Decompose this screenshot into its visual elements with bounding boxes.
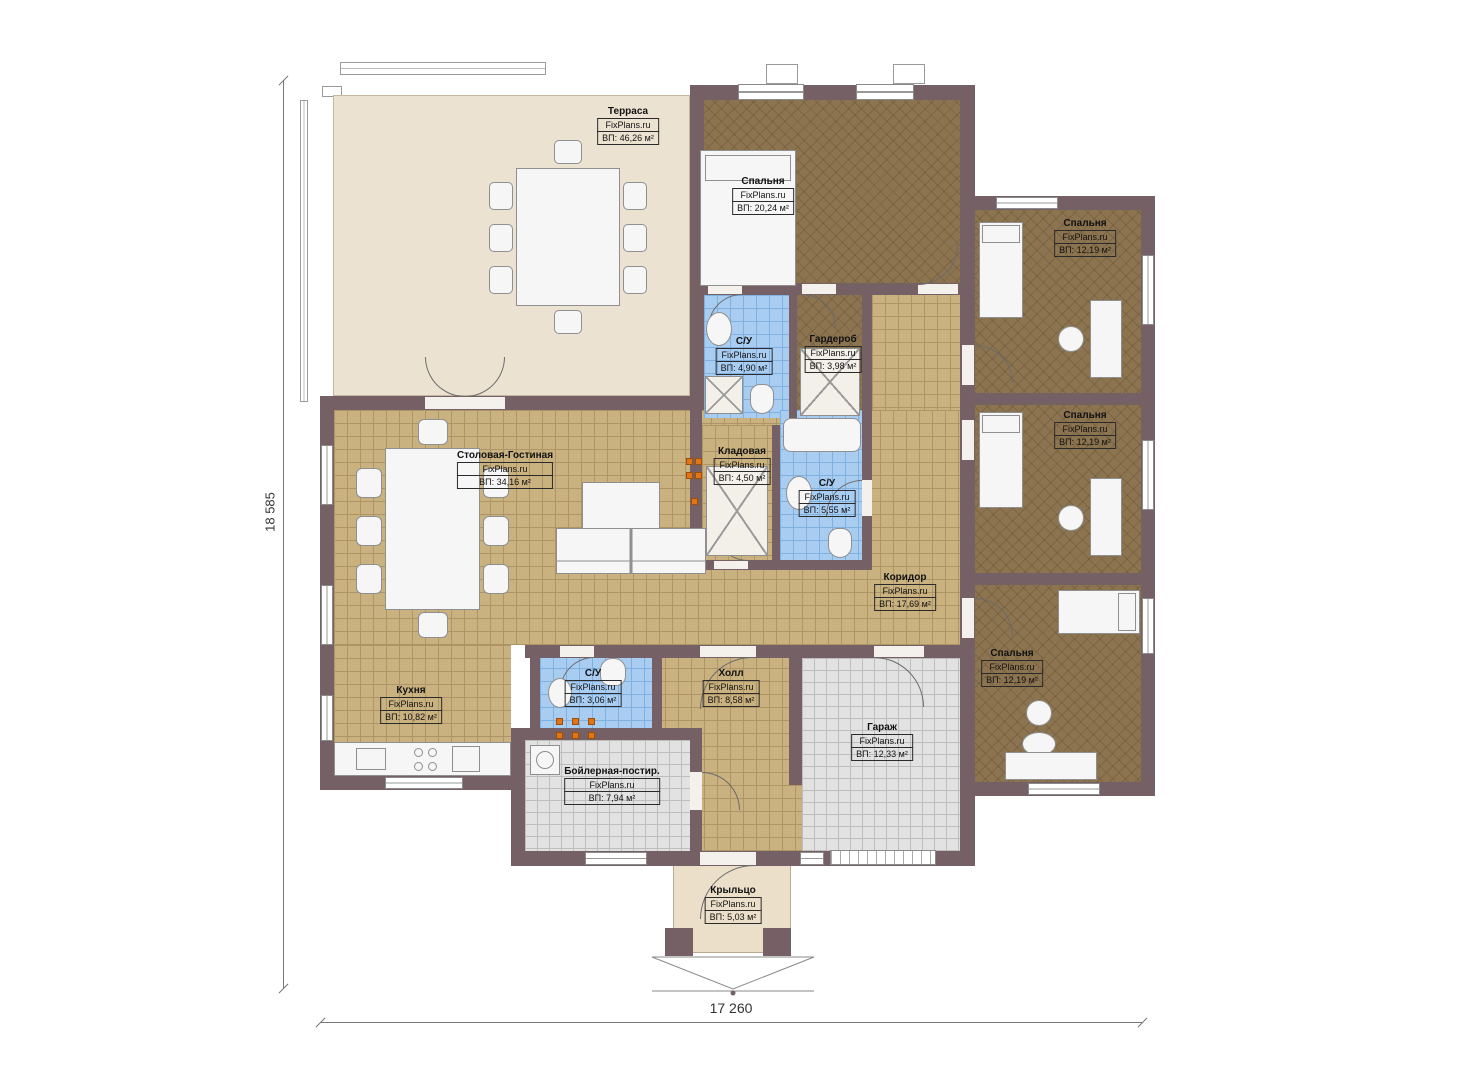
door-opening [700,852,756,865]
room-label-bedroom-mid-right: Спальня FixPlans.ru ВП: 12,19 м² [1054,410,1116,449]
room-area: ВП: 20,24 м² [732,201,794,215]
watermark: FixPlans.ru [380,697,442,711]
room-name: Спальня [981,648,1043,659]
stove-burner [556,732,563,739]
dresser [1005,752,1097,780]
room-label-bathroom-2: С/У FixPlans.ru ВП: 5,55 м² [799,478,856,517]
window [996,197,1058,209]
chair [483,516,509,546]
watermark: FixPlans.ru [457,462,553,476]
door-opening [714,561,748,569]
room-area: ВП: 3,06 м² [565,693,622,707]
terrace-screen [300,100,308,402]
watermark: FixPlans.ru [981,660,1043,674]
fireplace-burner [695,472,702,479]
roof-vent [893,64,925,84]
stove-burner [572,732,579,739]
wall [960,85,975,865]
room-label-bedroom-bottom-right: Спальня FixPlans.ru ВП: 12,19 м² [981,648,1043,687]
watermark: FixPlans.ru [703,680,760,694]
stove-burner [556,718,563,725]
window [321,585,333,645]
chair [623,224,647,252]
room-area: ВП: 5,55 м² [799,503,856,517]
room-area: ВП: 12,19 м² [981,673,1043,687]
room-name: Гардероб [805,334,862,345]
room-name: Холл [703,668,760,679]
chair [489,266,513,294]
watermark: FixPlans.ru [805,346,862,360]
window [800,852,824,865]
room-name: С/У [716,336,773,347]
sofa [556,528,706,574]
door-opening [962,345,974,385]
door-opening [690,772,702,810]
dishwasher [452,746,480,772]
coffee-table [582,482,660,530]
floor-plan-canvas: Терраса FixPlans.ru ВП: 46,26 м² Спальня… [0,0,1474,1080]
wall [690,85,975,100]
wall [862,283,872,570]
wall [975,573,1141,585]
toilet [828,528,852,558]
porch-steps [648,953,818,997]
room-label-kitchen: Кухня FixPlans.ru ВП: 10,82 м² [380,685,442,724]
chair [418,419,448,445]
porch-pillar [665,928,693,956]
room-label-boiler-laundry: Бойлерная-постир. FixPlans.ru ВП: 7,94 м… [564,766,660,805]
wall [975,393,1141,405]
room-name: Кладовая [714,446,771,457]
watermark: FixPlans.ru [732,188,794,202]
deck-edge [340,62,546,75]
room-name: С/У [565,668,622,679]
watermark: FixPlans.ru [851,734,913,748]
window [1142,598,1154,654]
dimension-width: 17 260 [710,1000,753,1016]
chair [554,310,582,334]
burner [414,762,423,771]
room-name: Столовая-Гостиная [457,450,553,461]
window [1028,783,1100,795]
desk [1090,478,1122,556]
terrace-table [516,168,620,306]
room-label-wardrobe: Гардероб FixPlans.ru ВП: 3,98 м² [805,334,862,373]
stove-burner [588,718,595,725]
window [1142,440,1154,510]
room-name: Коридор [874,572,936,583]
chair [554,140,582,164]
burner [414,748,423,757]
pillow [1118,593,1136,631]
room-label-pantry: Кладовая FixPlans.ru ВП: 4,50 м² [714,446,771,485]
chair [418,612,448,638]
window [321,695,333,741]
room-label-hall: Холл FixPlans.ru ВП: 8,58 м² [703,668,760,707]
room-area: ВП: 12,19 м² [1054,243,1116,257]
desk-chair [1058,326,1084,352]
room-area: ВП: 12,19 м² [1054,435,1116,449]
watermark: FixPlans.ru [705,897,762,911]
room-area: ВП: 12,33 м² [851,747,913,761]
chair [489,182,513,210]
door-opening [700,646,756,657]
chair [356,516,382,546]
washing-machine-drum [536,751,554,769]
wall [530,645,540,728]
room-label-living-dining: Столовая-Гостиная FixPlans.ru ВП: 34,16 … [457,450,553,489]
fireplace-burner [686,458,693,465]
chair [489,224,513,252]
pillow [982,225,1020,243]
wall [511,728,702,740]
fireplace-burner [695,458,702,465]
room-area: ВП: 4,50 м² [714,471,771,485]
toilet [750,384,774,414]
window [856,84,914,100]
door-opening [560,646,594,657]
window [585,852,647,865]
room-area: ВП: 7,94 м² [564,791,660,805]
desk-chair [1058,505,1084,531]
wall [511,728,525,866]
watermark: FixPlans.ru [716,348,773,362]
watermark: FixPlans.ru [1054,422,1116,436]
window [385,777,463,789]
chair [1026,700,1052,726]
room-area: ВП: 8,58 м² [703,693,760,707]
dimension-line-vertical [283,80,284,988]
stove-burner [572,718,579,725]
room-label-bedroom-top-right: Спальня FixPlans.ru ВП: 12,19 м² [1054,218,1116,257]
watermark: FixPlans.ru [565,680,622,694]
kitchen-sink [356,748,386,770]
watermark: FixPlans.ru [799,490,856,504]
room-name: С/У [799,478,856,489]
chair [623,266,647,294]
wall [789,295,797,420]
room-name: Спальня [732,176,794,187]
fireplace-burner [686,472,693,479]
door-opening [802,284,836,294]
bathtub [783,418,861,452]
wall [320,396,690,410]
room-name: Гараж [851,722,913,733]
room-area: ВП: 5,03 м² [705,910,762,924]
chair [483,564,509,594]
room-name: Бойлерная-постир. [564,766,660,777]
room-label-bathroom-1: С/У FixPlans.ru ВП: 4,90 м² [716,336,773,375]
burner [428,762,437,771]
wall [652,645,662,728]
window [1142,255,1154,325]
room-name: Кухня [380,685,442,696]
chair [623,182,647,210]
door-opening [962,598,974,638]
watermark: FixPlans.ru [874,584,936,598]
wall [772,425,780,565]
door-opening [962,420,974,460]
room-label-corridor: Коридор FixPlans.ru ВП: 17,69 м² [874,572,936,611]
dimension-height: 18 585 [263,492,278,532]
chair [356,468,382,498]
room-name: Спальня [1054,410,1116,421]
corridor-floor [872,290,960,410]
roof-vent [766,64,798,84]
room-area: ВП: 4,90 м² [716,361,773,375]
room-label-terrace: Терраса FixPlans.ru ВП: 46,26 м² [597,106,659,145]
porch-pillar [763,928,791,956]
room-label-bathroom-3: С/У FixPlans.ru ВП: 3,06 м² [565,668,622,707]
room-area: ВП: 3,98 м² [805,359,862,373]
watermark: FixPlans.ru [564,778,660,792]
burner [428,748,437,757]
fireplace-burner [691,498,698,505]
watermark: FixPlans.ru [1054,230,1116,244]
door-opening [918,284,958,294]
stove-burner [588,732,595,739]
room-area: ВП: 17,69 м² [874,597,936,611]
door-opening [874,646,924,657]
shower [705,376,743,414]
door-opening [425,397,505,409]
watermark: FixPlans.ru [714,458,771,472]
pillow [982,415,1020,433]
door-opening [862,480,872,516]
room-label-bedroom-master: Спальня FixPlans.ru ВП: 20,24 м² [732,176,794,215]
wall [789,655,802,785]
garage-door [830,850,936,865]
room-label-porch: Крыльцо FixPlans.ru ВП: 5,03 м² [705,885,762,924]
room-name: Спальня [1054,218,1116,229]
room-area: ВП: 34,16 м² [457,475,553,489]
room-area: ВП: 10,82 м² [380,710,442,724]
chair [356,564,382,594]
desk [1090,300,1122,378]
watermark: FixPlans.ru [597,118,659,132]
room-name: Крыльцо [705,885,762,896]
room-label-garage: Гараж FixPlans.ru ВП: 12,33 м² [851,722,913,761]
window [321,445,333,505]
window [738,84,804,100]
room-name: Терраса [597,106,659,117]
dimension-line-horizontal [320,1022,1142,1023]
room-area: ВП: 46,26 м² [597,131,659,145]
